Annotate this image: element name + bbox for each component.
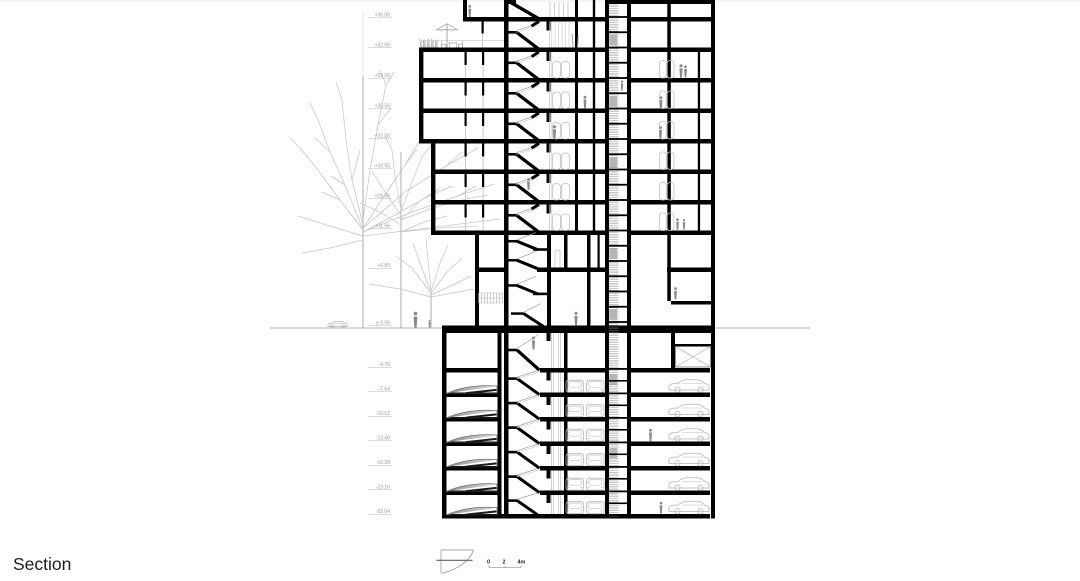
- svg-text:Section: Section: [13, 554, 71, 574]
- svg-text:4m: 4m: [518, 560, 526, 566]
- svg-text:0: 0: [487, 560, 490, 566]
- svg-text:2: 2: [503, 560, 506, 566]
